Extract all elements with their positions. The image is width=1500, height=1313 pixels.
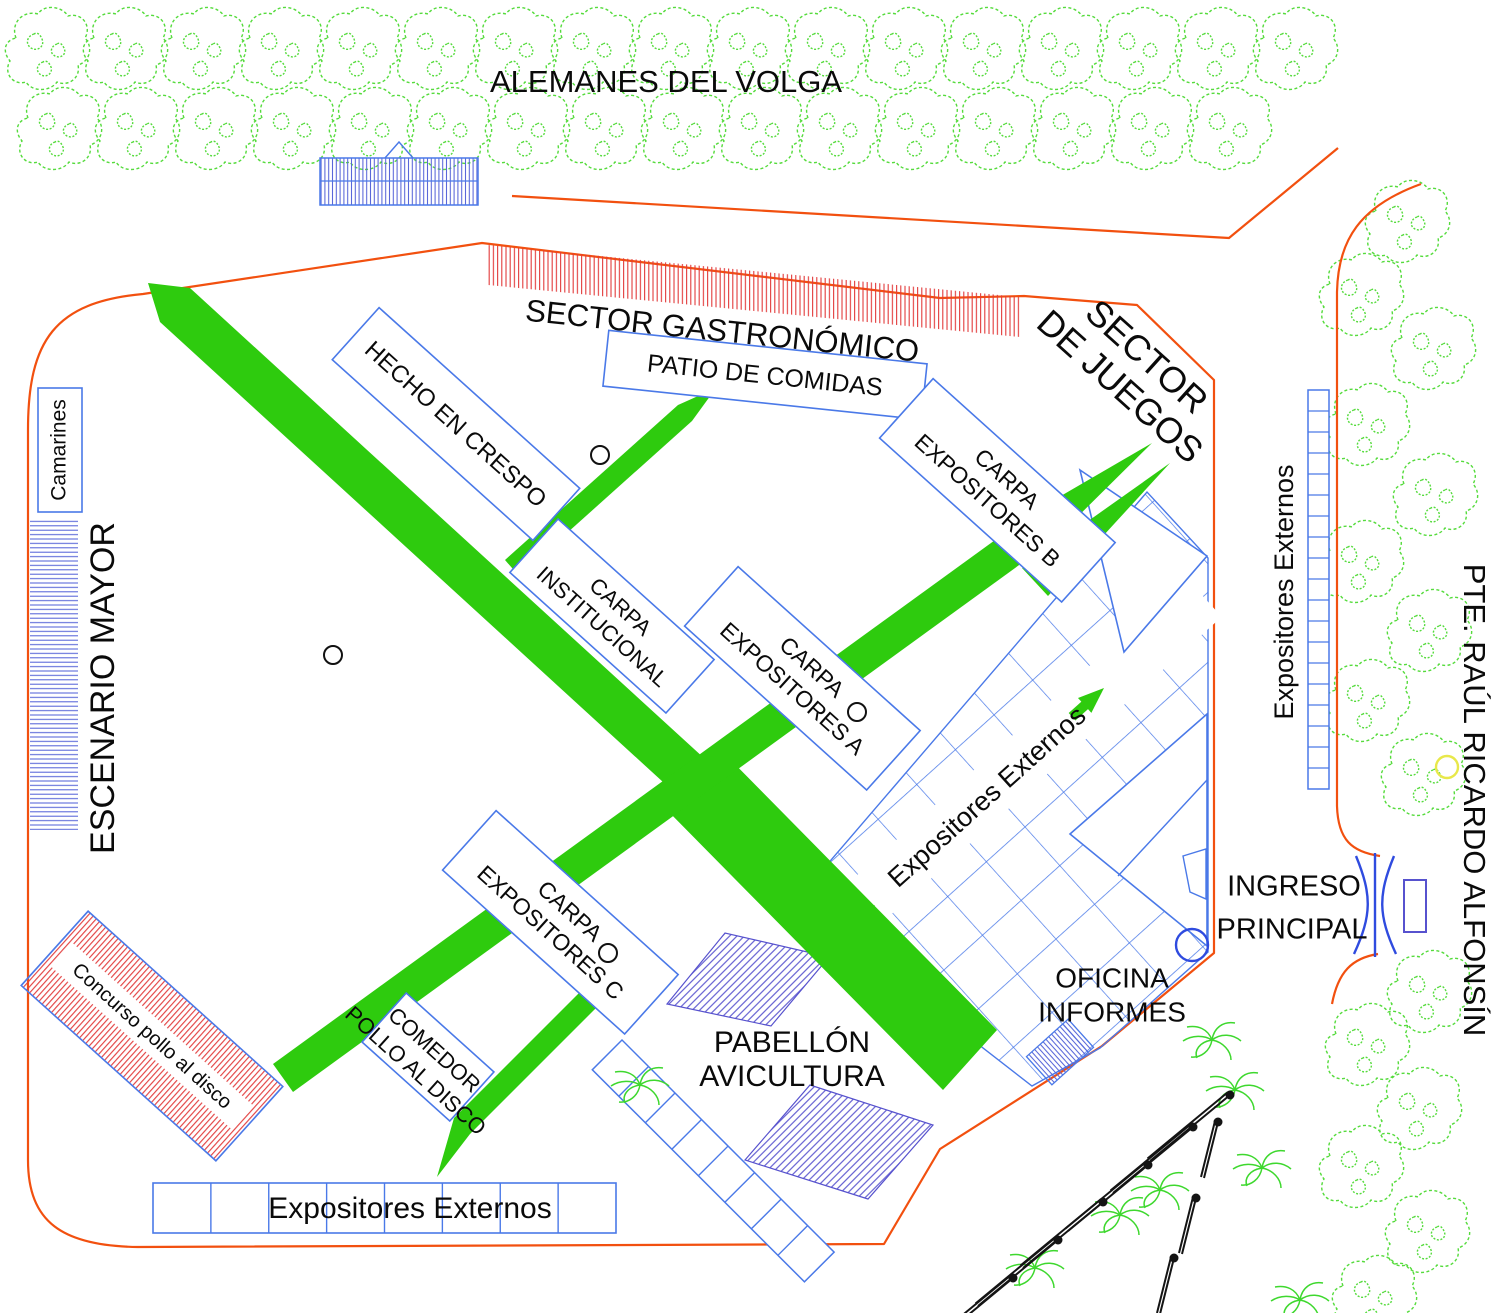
tree-icon bbox=[173, 87, 257, 169]
tree-icon bbox=[953, 87, 1037, 169]
tree-icon bbox=[1187, 87, 1271, 169]
stage-hatch bbox=[30, 520, 78, 830]
light-pole-icon bbox=[1201, 1118, 1223, 1179]
svg-text:AVICULTURA: AVICULTURA bbox=[699, 1060, 885, 1093]
tree-icon bbox=[1365, 180, 1449, 262]
palm-icon bbox=[1233, 1151, 1291, 1188]
concurso-pollo-box: Concurso pollo al disco bbox=[21, 911, 283, 1161]
tree-icon bbox=[1319, 253, 1403, 335]
tree-icon bbox=[1253, 7, 1337, 89]
tree-icon bbox=[719, 87, 803, 169]
volga-building bbox=[320, 142, 478, 205]
street-line-right-lower-arc bbox=[1332, 954, 1378, 1004]
svg-text:INFORMES: INFORMES bbox=[1038, 996, 1186, 1027]
tree-icon bbox=[1391, 307, 1475, 389]
escenario-mayor-label: ESCENARIO MAYOR bbox=[84, 522, 122, 854]
light-pole-icon bbox=[1179, 1194, 1201, 1255]
light-pole-icon bbox=[976, 1236, 1063, 1307]
camarines-label: Camarines bbox=[48, 399, 71, 501]
light-pole-rows bbox=[931, 1091, 1235, 1313]
tree-icon bbox=[1325, 1003, 1409, 1085]
palm-icon bbox=[1183, 1023, 1241, 1060]
palm-icon bbox=[1131, 1173, 1189, 1210]
tree-icon bbox=[1385, 1190, 1469, 1272]
tree-icon bbox=[161, 7, 245, 89]
point-marker-2 bbox=[591, 446, 609, 464]
tree-icon bbox=[317, 7, 401, 89]
tree-icon bbox=[239, 7, 323, 89]
site-plan: PATIO DE COMIDAS HECHO EN CRESPO CARPA I… bbox=[0, 0, 1500, 1313]
tree-icon bbox=[407, 87, 491, 169]
tree-icon bbox=[485, 87, 569, 169]
palm-icon bbox=[1271, 1283, 1329, 1313]
tree-icon bbox=[329, 87, 413, 169]
tree-icon bbox=[641, 87, 725, 169]
light-pole-icon bbox=[1157, 1254, 1179, 1313]
svg-text:OFICINA: OFICINA bbox=[1055, 962, 1169, 993]
expositores-bottom-label: Expositores Externos bbox=[268, 1192, 551, 1225]
tree-icon bbox=[797, 87, 881, 169]
tree-icon bbox=[875, 87, 959, 169]
street-line-top bbox=[512, 148, 1338, 238]
tree-icon bbox=[1109, 87, 1193, 169]
building-roof-peak bbox=[385, 142, 413, 158]
tree-column-right bbox=[1319, 180, 1477, 1313]
entrance-booth bbox=[1404, 880, 1426, 932]
tree-icon bbox=[1393, 453, 1477, 535]
tree-icon bbox=[1381, 733, 1465, 815]
expositores-right-label: Expositores Externos bbox=[1269, 464, 1299, 719]
street-line-right bbox=[1337, 184, 1421, 856]
tree-icon bbox=[941, 7, 1025, 89]
tree-icon bbox=[17, 87, 101, 169]
ingreso-label: INGRESO PRINCIPAL bbox=[1217, 871, 1368, 946]
pabellon-label: PABELLÓN AVICULTURA bbox=[699, 1026, 885, 1093]
site-plan-svg: PATIO DE COMIDAS HECHO EN CRESPO CARPA I… bbox=[0, 0, 1500, 1313]
pabellon-hatch-lower bbox=[745, 1085, 933, 1199]
tree-icon bbox=[395, 7, 479, 89]
tree-icon bbox=[95, 87, 179, 169]
street-top-label: ALEMANES DEL VOLGA bbox=[490, 64, 842, 99]
tree-icon bbox=[1332, 1255, 1416, 1313]
tree-icon bbox=[251, 87, 335, 169]
tree-icon bbox=[1319, 520, 1403, 602]
tree-icon bbox=[1175, 7, 1259, 89]
yellow-circle-marker bbox=[1436, 756, 1458, 778]
tree-icon bbox=[83, 7, 167, 89]
point-marker-1 bbox=[324, 646, 342, 664]
palm-icon bbox=[1206, 1073, 1264, 1110]
right-stall-column bbox=[1308, 390, 1329, 789]
sector-juegos-label: SECTOR DE JUEGOS bbox=[1029, 272, 1238, 471]
tree-icon bbox=[5, 7, 89, 89]
light-pole-icon bbox=[931, 1274, 1018, 1313]
svg-text:PRINCIPAL: PRINCIPAL bbox=[1217, 914, 1368, 946]
tree-icon bbox=[1031, 87, 1115, 169]
tree-icon bbox=[563, 87, 647, 169]
tree-icon bbox=[1377, 1067, 1461, 1149]
tree-icon bbox=[1097, 7, 1181, 89]
svg-text:PABELLÓN: PABELLÓN bbox=[714, 1026, 870, 1059]
tree-icon bbox=[1319, 1125, 1403, 1207]
svg-text:INGRESO: INGRESO bbox=[1227, 871, 1361, 903]
palm-icon bbox=[1006, 1251, 1064, 1288]
tree-icon bbox=[863, 7, 947, 89]
light-pole-icon bbox=[1021, 1198, 1108, 1269]
tree-icon bbox=[1019, 7, 1103, 89]
street-right-label: PTE. RAÚL RICARDO ALFONSÍN bbox=[1457, 564, 1492, 1037]
